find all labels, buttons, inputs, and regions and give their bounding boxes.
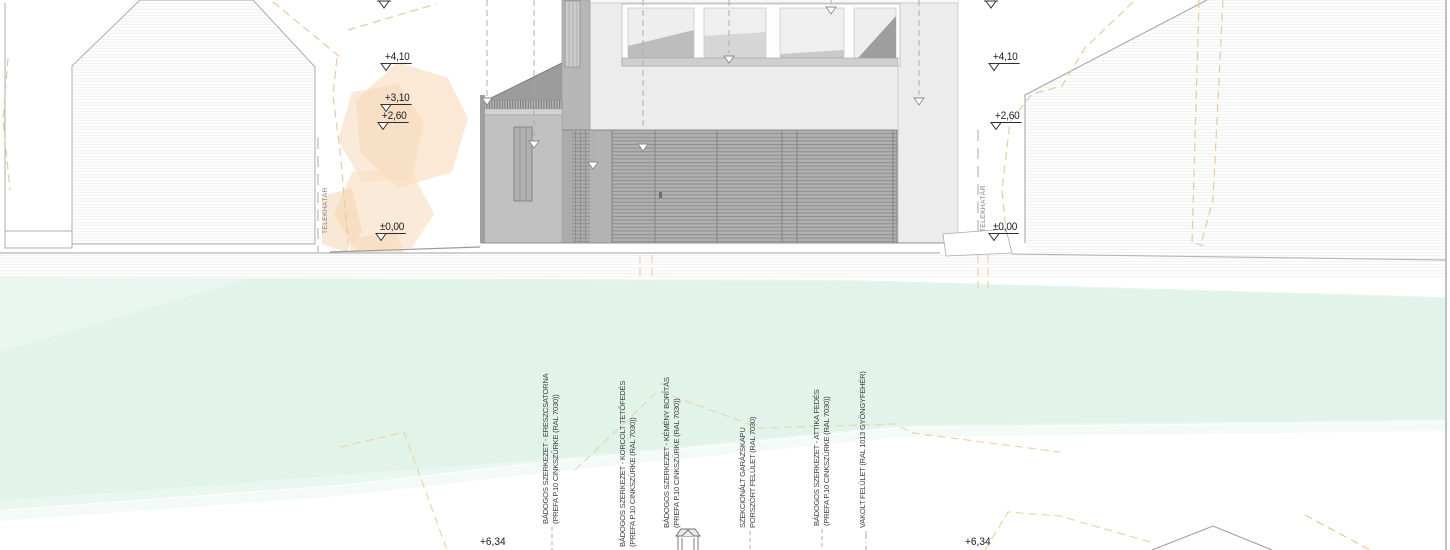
green-zone <box>0 277 1447 521</box>
boundary-label-right: TELEKHATÁR <box>980 185 987 232</box>
level-marker: ±0,00 <box>992 221 1021 234</box>
door-handle <box>659 192 662 198</box>
right-neighbor-house <box>1025 0 1445 255</box>
annotation-attika-fedes: BÁDOGOS SZERKEZET - ATTIKA FEDÉS (PREFA … <box>812 390 831 526</box>
annotation-line: BÁDOGOS SZERKEZET - ERESZCSATORNA <box>541 374 551 524</box>
level-marker: +6,34 <box>965 536 991 548</box>
level-marker: +2,60 <box>381 110 411 123</box>
level-marker-icon <box>377 0 391 9</box>
annotation-line: SZEKCIONÁLT GARÁZSKAPU <box>738 417 748 528</box>
annotation-line: (PREFA P.10 CINKSZÜRKE (RAL 7030)) <box>628 381 638 547</box>
level-marker: ±0,00 <box>379 221 408 234</box>
level-marker-icon <box>990 122 1002 130</box>
level-marker-icon <box>380 63 392 71</box>
level-marker: +4,10 <box>384 51 414 64</box>
annotation-vakolt-felulet: VAKOLT FELÜLET (RAL 1013 GYÖNGYFEHÉR) <box>858 371 868 528</box>
window-pane <box>780 8 844 58</box>
annotation-tetofedes: BÁDOGOS SZERKEZET - KORCOLT TETŐFEDÉS (P… <box>618 381 637 547</box>
upper-window-band <box>622 4 900 66</box>
annotation-line: (PREFA P.10 CINKSZÜRKE (RAL 7030)) <box>822 390 832 526</box>
level-marker-icon <box>375 233 387 241</box>
annotation-line: (PREFA P.10 CINKSZÜRKE (RAL 7030)) <box>672 377 682 528</box>
annotation-garazskapu: SZEKCIONÁLT GARÁZSKAPU PORSZÓRT FELÜLET … <box>738 417 757 528</box>
annotation-line: BÁDOGOS SZERKEZET - ATTIKA FEDÉS <box>812 390 822 526</box>
main-building <box>480 0 958 243</box>
annotation-line: BÁDOGOS SZERKEZET - KORCOLT TETŐFEDÉS <box>618 381 628 547</box>
boundary-label-left: TELEKHATÁR <box>322 187 329 234</box>
level-marker: +2,60 <box>994 110 1024 123</box>
annotation-line: PORSZÓRT FELÜLET (RAL 7030) <box>748 417 758 528</box>
level-marker-icon <box>377 122 389 130</box>
slit-window <box>514 127 532 201</box>
annotation-line: (PREFA P.10 CINKSZÜRKE (RAL 7030)) <box>551 374 561 524</box>
neighbor-gable-outline <box>1152 526 1272 550</box>
chimney <box>565 1 580 67</box>
annotation-line: BÁDOGOS SZERKEZET - KÉMÉNY BORÍTÁS <box>662 377 672 528</box>
level-marker: +4,10 <box>992 51 1022 64</box>
chimney-cap-icon <box>676 529 700 550</box>
level-marker: +6,34 <box>480 536 506 548</box>
left-neighbor-house <box>5 0 315 248</box>
annotation-ereszcsatorna: BÁDOGOS SZERKEZET - ERESZCSATORNA (PREFA… <box>541 374 560 524</box>
level-marker-icon <box>988 63 1000 71</box>
window-sill-band <box>622 58 898 66</box>
annotation-kemeny-boritas: BÁDOGOS SZERKEZET - KÉMÉNY BORÍTÁS (PREF… <box>662 377 681 528</box>
annotation-line: VAKOLT FELÜLET (RAL 1013 GYÖNGYFEHÉR) <box>858 371 868 528</box>
leader-lines <box>552 527 866 550</box>
level-marker: +3,10 <box>384 92 414 105</box>
elevation-artwork <box>0 0 1450 550</box>
level-marker-icon <box>988 233 1000 241</box>
roof-slope <box>483 63 562 115</box>
level-marker-icon <box>984 0 998 9</box>
elevation-drawing-sheet: +4,10 +3,10 +2,60 ±0,00 +4,10 +2,60 ±0,0… <box>0 0 1450 550</box>
eaves-hatch <box>483 100 562 109</box>
garage-door-louvers <box>562 130 897 243</box>
